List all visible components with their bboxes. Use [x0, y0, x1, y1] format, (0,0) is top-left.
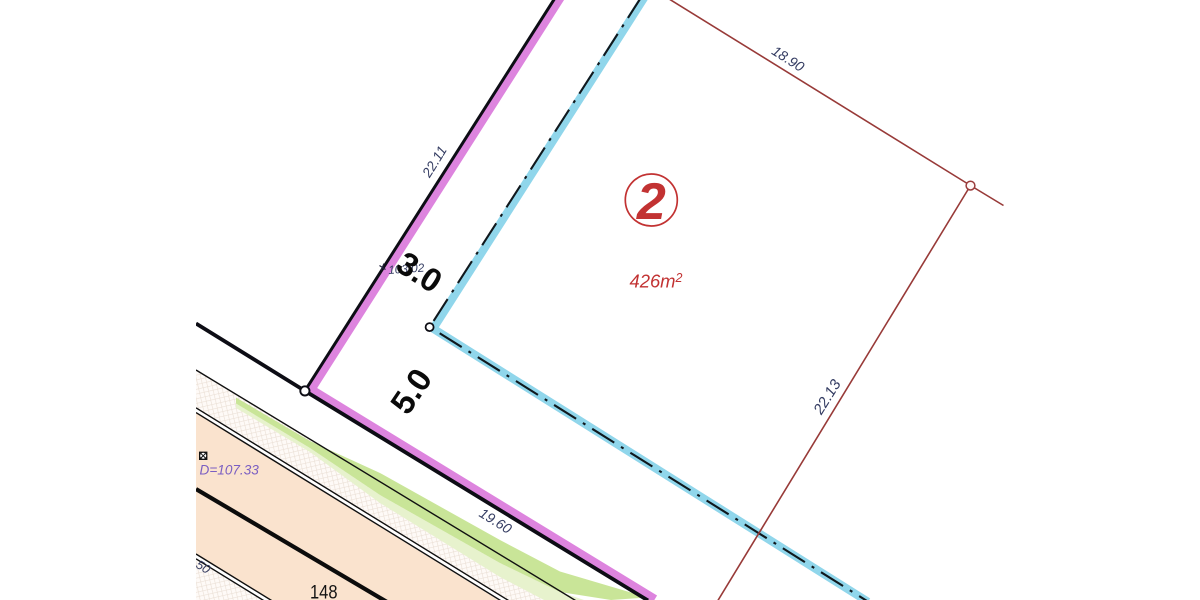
svg-text:148: 148	[310, 582, 338, 600]
svg-text:426m2: 426m2	[630, 271, 683, 292]
svg-text:D=107.33: D=107.33	[200, 463, 260, 478]
svg-text:2: 2	[636, 173, 666, 231]
